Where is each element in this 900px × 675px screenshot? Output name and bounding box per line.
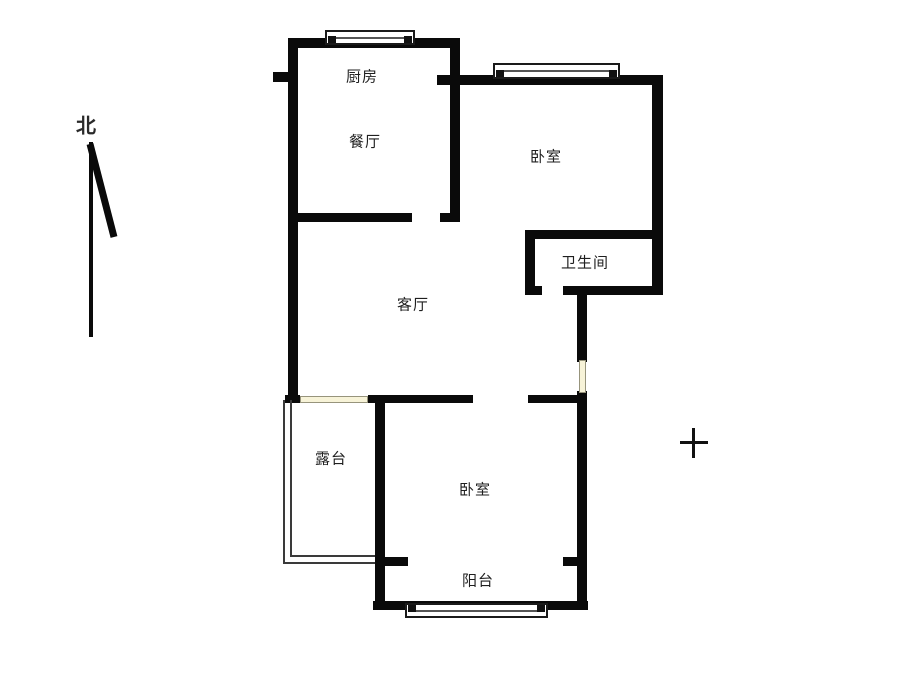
window-post <box>537 605 545 612</box>
bedroom-bottom-label: 卧室 <box>459 479 491 500</box>
north-arrow-icon <box>60 100 130 350</box>
crosshair-vertical <box>692 428 695 458</box>
party-wall-stub-left <box>273 72 288 82</box>
living-bottom-right-wall <box>528 395 587 403</box>
bathroom-top-wall <box>525 230 663 239</box>
dining-label: 餐厅 <box>349 131 381 152</box>
bathroom-label: 卫生间 <box>561 252 609 273</box>
window-pane <box>411 610 542 612</box>
bathroom-bottom-left <box>525 286 542 295</box>
balcony-label: 阳台 <box>462 570 494 591</box>
window-pane <box>331 37 409 39</box>
living-bottom-mid-wall <box>368 395 473 403</box>
living-label: 客厅 <box>397 294 429 315</box>
right-outer-wall <box>652 75 663 295</box>
corridor-door <box>579 360 586 393</box>
terrace-label: 露台 <box>315 448 347 469</box>
window-post <box>408 605 416 612</box>
bedroom-bottom-left-stub <box>375 557 408 566</box>
window-post <box>609 70 617 77</box>
bathroom-bottom-right <box>563 286 663 295</box>
bedroom-right-wall <box>577 391 587 610</box>
kitchen-window <box>325 30 415 45</box>
dining-bottom-wall <box>288 213 412 222</box>
kitchen-label: 厨房 <box>346 66 378 87</box>
terrace-door <box>300 396 368 403</box>
window-post <box>496 70 504 77</box>
balcony-window <box>405 603 548 618</box>
bedroom-top-window <box>493 63 620 79</box>
kitchen-right-wall <box>450 38 460 222</box>
dining-bottom-foot <box>440 213 460 222</box>
window-post <box>404 36 412 43</box>
crosshair-mark <box>680 428 710 460</box>
window-post <box>328 36 336 43</box>
terrace-inner-line <box>290 400 375 557</box>
corridor-wall-upper <box>577 295 587 362</box>
bedroom-left-wall <box>375 395 385 610</box>
window-pane <box>499 70 614 72</box>
bedroom-top-label: 卧室 <box>530 146 562 167</box>
floor-plan: 北 厨房 餐厅 卧室 卫生间 <box>0 0 900 675</box>
bedroom-bottom-right-stub <box>563 557 577 566</box>
